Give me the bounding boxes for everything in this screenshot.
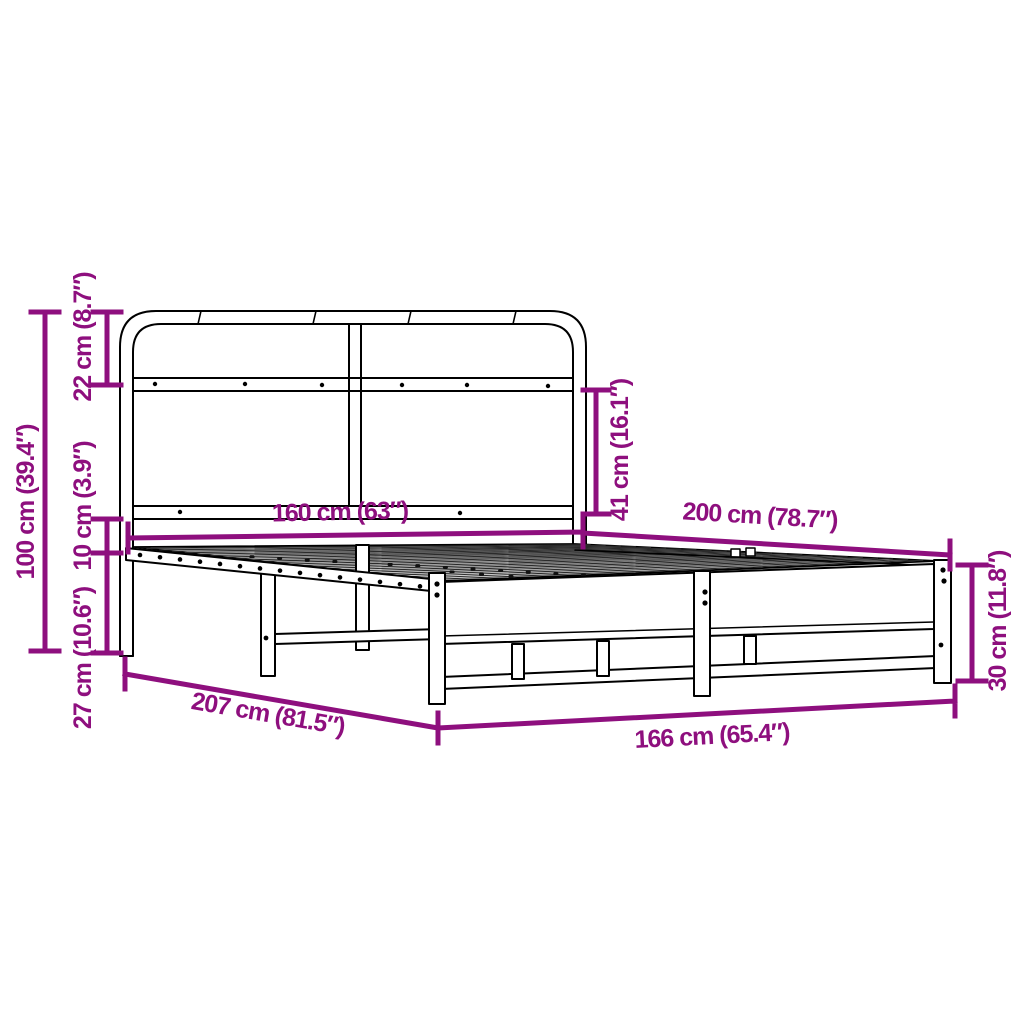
dim-label-rail-gap: 10 cm (3.9″) [69, 441, 97, 571]
slatted-base [126, 544, 951, 704]
dim-label-headboard-above-base: 41 cm (16.1″) [606, 378, 634, 521]
foot-end-frame [441, 564, 936, 696]
foot-post-1 [512, 644, 524, 679]
diagram-stage: 100 cm (39.4″) 22 cm (8.7″) 10 cm (3.9″)… [0, 0, 1024, 1024]
foot-left-leg [429, 573, 445, 704]
dim-label-mattress-width: 160 cm (63″) [272, 496, 409, 527]
dim-label-headboard-top: 22 cm (8.7″) [69, 272, 97, 402]
deck-bracket-2 [746, 548, 755, 556]
dim-label-base-height: 30 cm (11.8″) [984, 550, 1012, 691]
dim-line-rail-gap-and-clearance [93, 519, 121, 653]
dim-line-base-height [958, 565, 986, 681]
foot-center-leg [694, 571, 710, 696]
dim-label-total-length: 207 cm (81.5″) [189, 687, 347, 741]
dim-label-mattress-length: 200 cm (78.7″) [682, 497, 839, 534]
mid-left-leg [261, 566, 275, 676]
deck-bracket-1 [731, 549, 740, 557]
foot-right-leg [934, 560, 951, 683]
bed-frame-dimension-diagram: 100 cm (39.4″) 22 cm (8.7″) 10 cm (3.9″)… [0, 0, 1024, 1024]
dim-label-total-width: 166 cm (65.4″) [634, 718, 791, 754]
dim-line-headboard-top [93, 312, 121, 385]
headboard-tube-joints [198, 311, 516, 324]
left-lower-brace [275, 629, 441, 644]
dim-label-headboard-height: 100 cm (39.4″) [12, 424, 40, 580]
dim-label-underbed-clearance: 27 cm (10.6″) [69, 586, 97, 729]
foot-post-2 [597, 641, 609, 676]
foot-post-3 [744, 636, 756, 664]
headboard-upper-bar [133, 378, 573, 391]
headboard-center-post [349, 324, 361, 506]
